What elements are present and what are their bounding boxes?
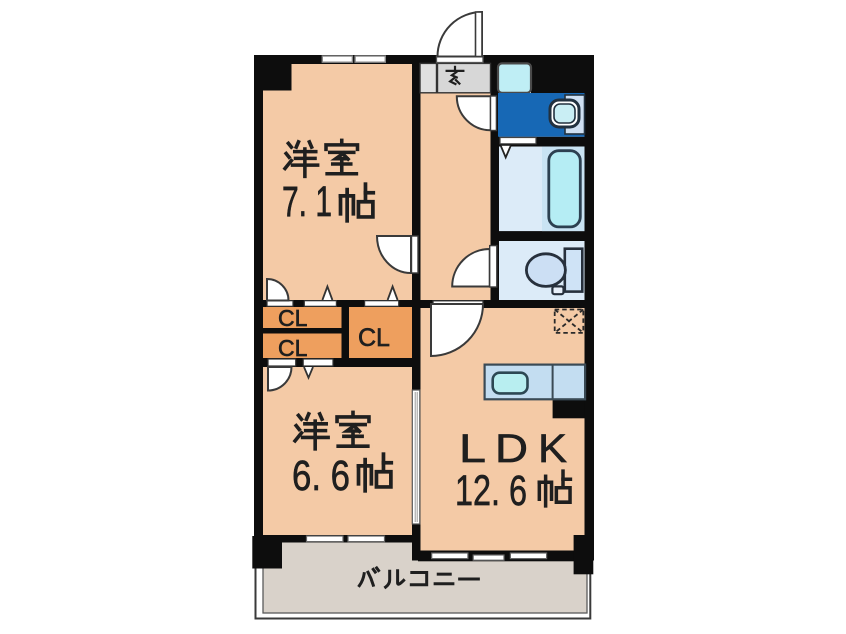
svg-text:CL: CL bbox=[358, 324, 390, 352]
svg-text:12. 6: 12. 6 bbox=[455, 467, 527, 515]
svg-text:7. 1: 7. 1 bbox=[282, 178, 332, 226]
svg-text:D: D bbox=[495, 427, 528, 471]
svg-text:6. 6: 6. 6 bbox=[292, 452, 350, 500]
svg-text:CL: CL bbox=[278, 305, 308, 331]
svg-text:L: L bbox=[459, 427, 486, 471]
svg-text:CL: CL bbox=[278, 335, 308, 361]
svg-text:K: K bbox=[538, 427, 567, 471]
